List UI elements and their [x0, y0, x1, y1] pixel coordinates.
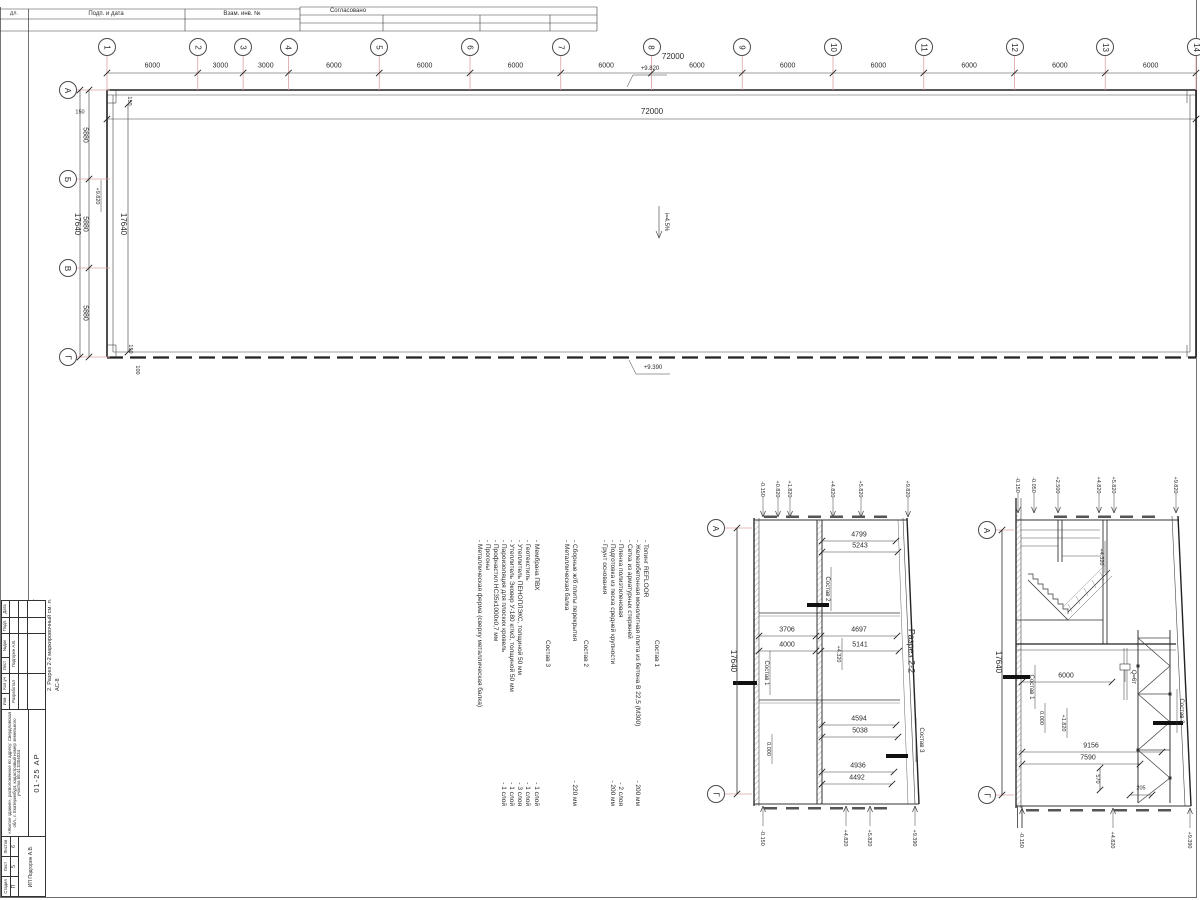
sostav-item: - Утеплитель ПЕНОПЛЭКС, толщиной 50 мм- … — [515, 540, 523, 806]
stamp-rev-doc: №док — [2, 633, 10, 657]
stamp-empty-row — [28, 633, 45, 673]
stamp-project-text: «Жилое здание», расположенное по адресу:… — [2, 709, 29, 836]
sostav-item: - Пароизоляция для плоских кровель- 1 сл… — [499, 540, 507, 806]
sostav-item: - Прогоны — [483, 540, 491, 806]
stamp-role-name: Подгорин А.В. — [10, 633, 19, 673]
stamp-rev-list: Лист — [2, 657, 10, 673]
drawing-sheet: дл. Подп. и дата Взам. инв. № Согласован… — [0, 0, 1200, 900]
sostav-item: - Металлическая ферма (сверху металличес… — [475, 540, 483, 806]
stamp-stage-label: Стадия — [2, 876, 11, 896]
stamp-rev-kol: Кол.уч — [2, 673, 10, 693]
sostav-item: - Пленка полиэтиленовая- 2 слоя — [616, 540, 624, 806]
sostav-item: - Геотекстиль- 1 слой — [523, 540, 531, 806]
stamp-empty-row — [19, 633, 28, 673]
sostav-item: - Мембрана ПВХ- 1 слой — [532, 540, 540, 806]
sostav-group-1: Состав 1- Топинг REFLOOR- Железобетонная… — [600, 540, 660, 806]
title-block: Стадия Лист Листов П 5 6 ИП Подгорин А.В… — [1, 600, 46, 897]
sostav-item: - Грунт основания — [600, 540, 608, 806]
stamp-empty-row — [19, 673, 28, 709]
stamp-empty-row — [19, 617, 28, 633]
sostav-group-3: Состав 3- Мембрана ПВХ- 1 слой- Геотекст… — [475, 540, 551, 806]
sostav-item: - Профнастил НС35х1000х0,7 мм — [491, 540, 499, 806]
sostav-item: - Металлическая балка — [562, 540, 570, 806]
stamp-company: ИП Подгорин А.В. — [19, 836, 45, 896]
composition-notes: Состав 1- Топинг REFLOOR- Железобетонная… — [464, 540, 660, 806]
stamp-sheet-value: 5 — [11, 856, 19, 876]
stamp-rev-podp: Подп. — [2, 617, 10, 633]
sostav-item: - Топинг REFLOOR — [641, 540, 649, 806]
sostav-group-2: Состав 2- Сборные ж/б плиты перекрытия- … — [562, 540, 589, 806]
sostav-item: - Утеплитель Эковер У-180 кг/м3, толщино… — [507, 540, 515, 806]
stamp-empty-row — [28, 617, 45, 633]
sostav-group-title: Состав 3 — [543, 640, 551, 806]
sostav-item: - Сборные ж/б плиты перекрытия- 220 мм — [570, 540, 578, 806]
sostav-item: - Железобетонная монолитная плита из бет… — [633, 540, 641, 806]
stamp-sheets-label: Листов — [2, 836, 11, 856]
sostav-group-title: Состав 2 — [581, 640, 589, 806]
stamp-empty-row — [28, 601, 45, 617]
stamp-sheets-value: 6 — [11, 836, 19, 856]
sostav-group-title: Состав 1 — [652, 640, 660, 806]
stamp-sheet-label: Лист — [2, 856, 11, 876]
stamp-rev-izm: Изм — [2, 693, 10, 709]
stamp-empty-row — [28, 673, 45, 709]
side-note-2: 2. Разрез 2-2 маркировочный см. л. АС-8 — [46, 598, 63, 691]
stamp-doc-code: 01-25 АР — [29, 709, 45, 836]
stamp-role: Разработал — [10, 673, 19, 709]
stamp-stage-value: П — [11, 876, 19, 896]
stamp-role-sign — [10, 617, 19, 633]
sostav-item: - Подготовка из песка средней крупности-… — [608, 540, 616, 806]
stamp-role-date — [10, 601, 19, 617]
stamp-empty-row — [19, 601, 28, 617]
sostav-item: - Сетка из арматурных стержней — [625, 540, 633, 806]
stamp-rev-data: Дата — [2, 601, 10, 617]
